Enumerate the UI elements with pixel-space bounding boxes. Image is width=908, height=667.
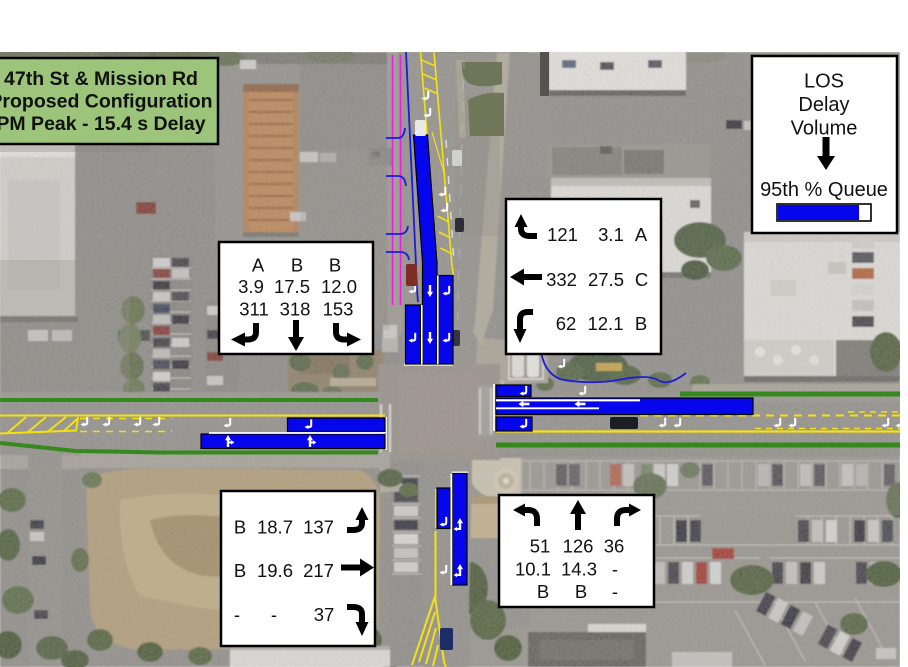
svg-text:B: B: [329, 255, 341, 276]
svg-text:C: C: [635, 269, 648, 290]
svg-text:12.1: 12.1: [587, 313, 623, 334]
svg-text:-: -: [612, 559, 618, 580]
svg-text:27.5: 27.5: [588, 269, 624, 290]
svg-text:95th % Queue: 95th % Queue: [760, 179, 888, 201]
svg-text:153: 153: [323, 299, 354, 320]
svg-text:PM Peak - 15.4 s Delay: PM Peak - 15.4 s Delay: [0, 113, 206, 135]
svg-text:332: 332: [546, 269, 577, 290]
svg-text:B: B: [635, 313, 647, 334]
svg-text:LOS: LOS: [804, 71, 844, 93]
svg-text:Volume: Volume: [791, 118, 858, 140]
svg-text:Delay: Delay: [798, 94, 849, 116]
svg-text:137: 137: [303, 517, 334, 538]
svg-text:47th St & Mission Rd: 47th St & Mission Rd: [4, 68, 198, 90]
svg-text:311: 311: [239, 299, 269, 320]
svg-text:3.9: 3.9: [238, 276, 264, 297]
svg-text:51: 51: [530, 536, 551, 557]
svg-text:B: B: [234, 517, 246, 538]
svg-text:A: A: [252, 255, 265, 276]
svg-text:B: B: [234, 560, 246, 581]
svg-text:126: 126: [563, 536, 594, 557]
svg-text:-: -: [612, 581, 618, 602]
svg-text:36: 36: [604, 536, 625, 557]
svg-text:Proposed Configuration: Proposed Configuration: [0, 91, 213, 113]
svg-text:17.5: 17.5: [274, 276, 310, 297]
svg-text:B: B: [537, 581, 549, 602]
svg-text:19.6: 19.6: [257, 560, 293, 581]
svg-text:-: -: [271, 604, 277, 625]
svg-text:121: 121: [547, 224, 578, 245]
svg-text:B: B: [291, 255, 303, 276]
svg-text:3.1: 3.1: [598, 224, 624, 245]
svg-text:-: -: [234, 604, 240, 625]
svg-text:37: 37: [314, 604, 335, 625]
svg-text:B: B: [575, 581, 587, 602]
svg-text:217: 217: [303, 560, 334, 581]
svg-text:10.1: 10.1: [515, 559, 551, 580]
svg-text:A: A: [635, 224, 648, 245]
svg-text:62: 62: [556, 313, 577, 334]
svg-text:14.3: 14.3: [561, 559, 597, 580]
svg-text:18.7: 18.7: [257, 517, 293, 538]
svg-text:12.0: 12.0: [321, 276, 357, 297]
svg-text:318: 318: [280, 299, 311, 320]
